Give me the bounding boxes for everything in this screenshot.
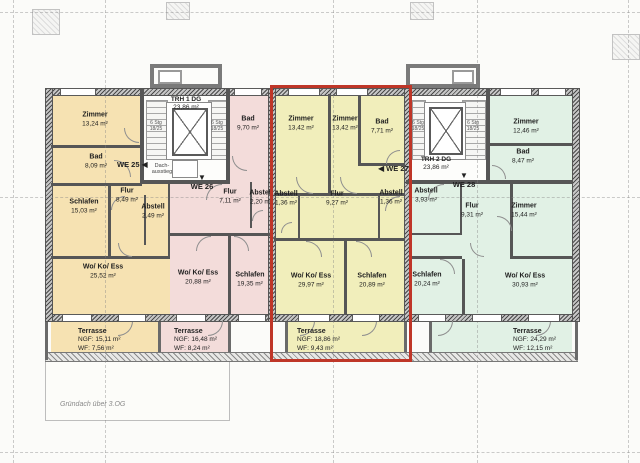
- stair-note: 6 Stg 18/25: [211, 120, 224, 132]
- room-name: Wo/ Ko/ Ess: [178, 270, 218, 279]
- wall: [510, 256, 572, 259]
- wall: [410, 233, 462, 235]
- wall: [488, 143, 572, 146]
- room-area: 25,52 m²: [83, 272, 123, 280]
- room-area: 15,03 m²: [69, 207, 98, 215]
- stairwell-name: TRH 2 DG: [421, 156, 451, 164]
- roof-structure-inner: [158, 70, 182, 84]
- terrace-label-we25: Terrasse NGF: 15,11 m² WF: 7,56 m²: [78, 327, 121, 353]
- room-area: 3,93 m²: [414, 196, 437, 204]
- floor-plan-canvas: Gründach über 3.OG: [0, 0, 640, 463]
- window: [472, 314, 502, 322]
- room-name: Abstell: [414, 188, 437, 197]
- terrace-ngf: NGF: 16,48 m²: [174, 336, 217, 344]
- room-name: Zimmer: [513, 119, 539, 128]
- terrace-label-we28: Terrasse NGF: 24,29 m² WF: 12,15 m²: [513, 327, 556, 353]
- room-name: Schlafen: [69, 199, 98, 208]
- wall: [51, 256, 170, 259]
- terrace-label-we26: Terrasse NGF: 16,48 m² WF: 8,24 m²: [174, 327, 217, 353]
- terrace-name: Terrasse: [513, 327, 556, 336]
- room-area: 8,09 m²: [85, 162, 107, 170]
- room-area: 8,49 m²: [116, 196, 138, 204]
- room-label: Zimmer 12,46 m²: [513, 119, 539, 136]
- wall: [158, 320, 161, 352]
- room-label: Schlafen 20,24 m²: [412, 272, 441, 289]
- wall: [575, 320, 578, 360]
- terrace-wf: WF: 7,56 m²: [78, 345, 121, 353]
- grid-line-v: [477, 0, 478, 463]
- stairwell-trh1-label: TRH 1 DG 23,86 m²: [171, 96, 201, 113]
- wall: [462, 259, 465, 314]
- room-area: 9,31 m²: [461, 211, 483, 219]
- wall: [228, 320, 231, 352]
- room-name: Flur: [219, 189, 241, 198]
- room-label: Schlafen 15,03 m²: [69, 199, 98, 216]
- grid-line-h: [0, 452, 640, 453]
- room-area: 2,49 m²: [141, 212, 164, 220]
- stairwell-area: 23,86 m²: [421, 164, 451, 172]
- elevator-icon: [172, 108, 208, 156]
- apartment-id-we25: WE 25 ◀: [117, 160, 148, 169]
- room-label: Abstell 3,93 m²: [414, 188, 437, 205]
- grid-line-h: [0, 12, 640, 13]
- room-name: Zimmer: [82, 112, 108, 121]
- wall: [410, 256, 462, 259]
- room-name: Flur: [116, 188, 138, 197]
- green-roof-note: Gründach über 3.OG: [60, 401, 125, 408]
- stair-note: 6 Stg 18/25: [467, 120, 480, 132]
- apartment-id-we28: ▼ WE 28: [453, 172, 476, 189]
- window: [60, 88, 96, 96]
- terrace-ngf: NGF: 15,11 m²: [78, 336, 121, 344]
- window: [538, 88, 566, 96]
- wall: [226, 88, 230, 184]
- room-area: 20,88 m²: [178, 278, 218, 286]
- terrace-name: Terrasse: [174, 327, 217, 336]
- room-area: 9,70 m²: [237, 124, 259, 132]
- terrace-wf: WF: 8,24 m²: [174, 345, 217, 353]
- window: [62, 314, 92, 322]
- room-name: Bad: [512, 149, 534, 158]
- highlight-we27-outline: [270, 85, 412, 362]
- grid-mark: [166, 2, 190, 20]
- outer-wall-left: [45, 88, 53, 322]
- room-label: Flur 8,49 m²: [116, 188, 138, 205]
- wall: [488, 180, 572, 184]
- room-name: Schlafen: [412, 272, 441, 281]
- apartment-id-text: WE 26: [191, 182, 214, 191]
- stair-note: 6 Stg 18/25: [412, 120, 425, 132]
- grid-line-v: [105, 0, 106, 463]
- room-name: Wo/ Ko/ Ess: [83, 264, 123, 273]
- roof-structure-inner: [452, 70, 474, 84]
- window: [418, 314, 446, 322]
- room-area: 13,24 m²: [82, 120, 108, 128]
- room-label: Flur 7,11 m²: [219, 189, 241, 206]
- window: [234, 88, 262, 96]
- room-name: Bad: [85, 154, 107, 163]
- apartment-we26-area: [228, 94, 270, 182]
- room-area: 15,44 m²: [511, 211, 537, 219]
- room-label: Wo/ Ko/ Ess 25,52 m²: [83, 264, 123, 281]
- wall: [45, 320, 48, 360]
- room-label: Flur 9,31 m²: [461, 203, 483, 220]
- window: [238, 314, 266, 322]
- room-label: Bad 8,47 m²: [512, 149, 534, 166]
- wall: [51, 145, 142, 148]
- entry-arrow-icon: ▼: [460, 172, 468, 180]
- stair-note: 6 Stg 18/25: [150, 120, 163, 132]
- wall: [170, 233, 270, 236]
- room-label: Schlafen 19,35 m²: [235, 272, 264, 289]
- grid-line-v: [13, 0, 14, 463]
- roof-access-label: Dach-ausstieg: [148, 163, 176, 176]
- room-label: Wo/ Ko/ Ess 30,93 m²: [505, 273, 545, 290]
- grid-line-v: [628, 0, 629, 463]
- terrace-ngf: NGF: 24,29 m²: [513, 336, 556, 344]
- wall: [486, 88, 490, 184]
- room-area: 19,35 m²: [235, 280, 264, 288]
- stair-note-line: 18/25: [467, 126, 480, 132]
- room-label: Abstell 2,49 m²: [141, 204, 164, 221]
- room-label: Wo/ Ko/ Ess 20,88 m²: [178, 270, 218, 287]
- stairwell-name: TRH 1 DG: [171, 96, 201, 104]
- wall: [51, 183, 142, 186]
- room-name: Zimmer: [511, 203, 537, 212]
- room-name: Bad: [237, 116, 259, 125]
- terrace-wf: WF: 12,15 m²: [513, 345, 556, 353]
- room-area: 20,24 m²: [412, 280, 441, 288]
- wall: [140, 88, 144, 184]
- wall: [168, 182, 170, 258]
- apartment-id-text: WE 28: [453, 180, 476, 189]
- wall: [510, 184, 513, 258]
- room-label: Zimmer 15,44 m²: [511, 203, 537, 220]
- room-area: 7,11 m²: [219, 197, 241, 205]
- window: [500, 88, 532, 96]
- wall: [429, 320, 432, 352]
- window: [176, 314, 206, 322]
- room-area: 8,47 m²: [512, 157, 534, 165]
- room-name: Wo/ Ko/ Ess: [505, 273, 545, 282]
- entry-arrow-icon: ▼: [198, 174, 206, 182]
- terrace-name: Terrasse: [78, 327, 121, 336]
- room-name: Flur: [461, 203, 483, 212]
- stair-note-line: 18/25: [412, 126, 425, 132]
- apartment-id-we26: ▼ WE 26: [191, 174, 214, 191]
- grid-mark: [410, 2, 434, 20]
- stairwell-area: 23,86 m²: [171, 104, 201, 112]
- window: [118, 314, 146, 322]
- green-roof-area: [45, 360, 230, 421]
- room-area: 30,93 m²: [505, 281, 545, 289]
- wall: [228, 236, 231, 314]
- outer-wall-right: [572, 88, 580, 322]
- stair-note-line: 18/25: [211, 126, 224, 132]
- room-area: 12,46 m²: [513, 127, 539, 135]
- apartment-we25-area: [142, 182, 170, 314]
- apartment-id-text: WE 25: [117, 160, 140, 169]
- wall: [140, 180, 230, 184]
- entry-arrow-icon: ◀: [142, 161, 148, 169]
- room-label: Bad 9,70 m²: [237, 116, 259, 133]
- window: [528, 314, 560, 322]
- stairwell-trh2-label: TRH 2 DG 23,86 m²: [421, 156, 451, 173]
- grid-mark: [612, 34, 640, 60]
- stair-note-line: 18/25: [150, 126, 163, 132]
- room-name: Schlafen: [235, 272, 264, 281]
- room-label: Bad 8,09 m²: [85, 154, 107, 171]
- room-name: Abstell: [141, 204, 164, 213]
- elevator-icon: [429, 107, 463, 155]
- room-label: Zimmer 13,24 m²: [82, 112, 108, 129]
